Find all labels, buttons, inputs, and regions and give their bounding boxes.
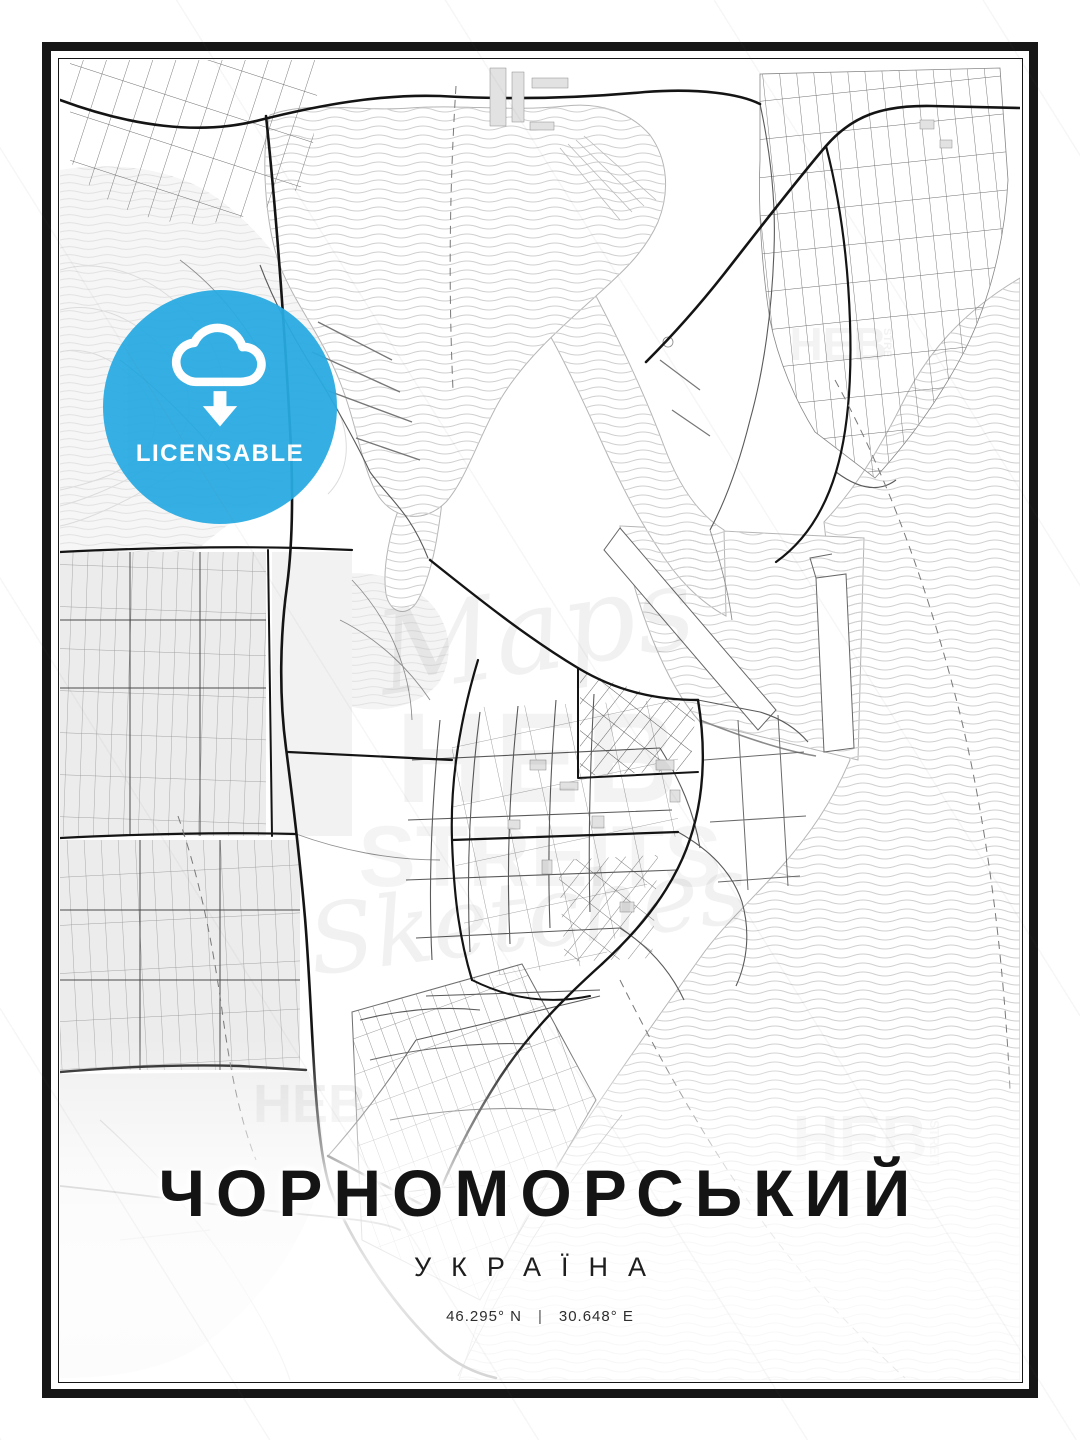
watermark-heb-bottom-left: HEB xyxy=(253,1074,367,1134)
latitude-value: 46.295° N xyxy=(446,1308,522,1325)
licensable-badge[interactable]: LICENSABLE xyxy=(103,290,337,524)
poster-subtitle: УКРАЇНА xyxy=(0,1254,1080,1281)
poster: Maps HEB STREITS Sketches HEB HEB STREIT… xyxy=(0,0,1080,1440)
longitude-value: 30.648° E xyxy=(559,1308,634,1325)
watermark-heb-top-right: HEB xyxy=(789,318,886,370)
poster-title: ЧОРНОМОРСЬКИЙ xyxy=(0,1160,1080,1226)
coordinates-separator: | xyxy=(538,1308,543,1325)
cloud-download-icon xyxy=(154,316,286,434)
watermark-stre-vertical: STRE xyxy=(881,328,893,357)
licensable-badge-label: LICENSABLE xyxy=(136,440,304,468)
poster-coordinates: 46.295° N | 30.648° E xyxy=(0,1308,1080,1325)
